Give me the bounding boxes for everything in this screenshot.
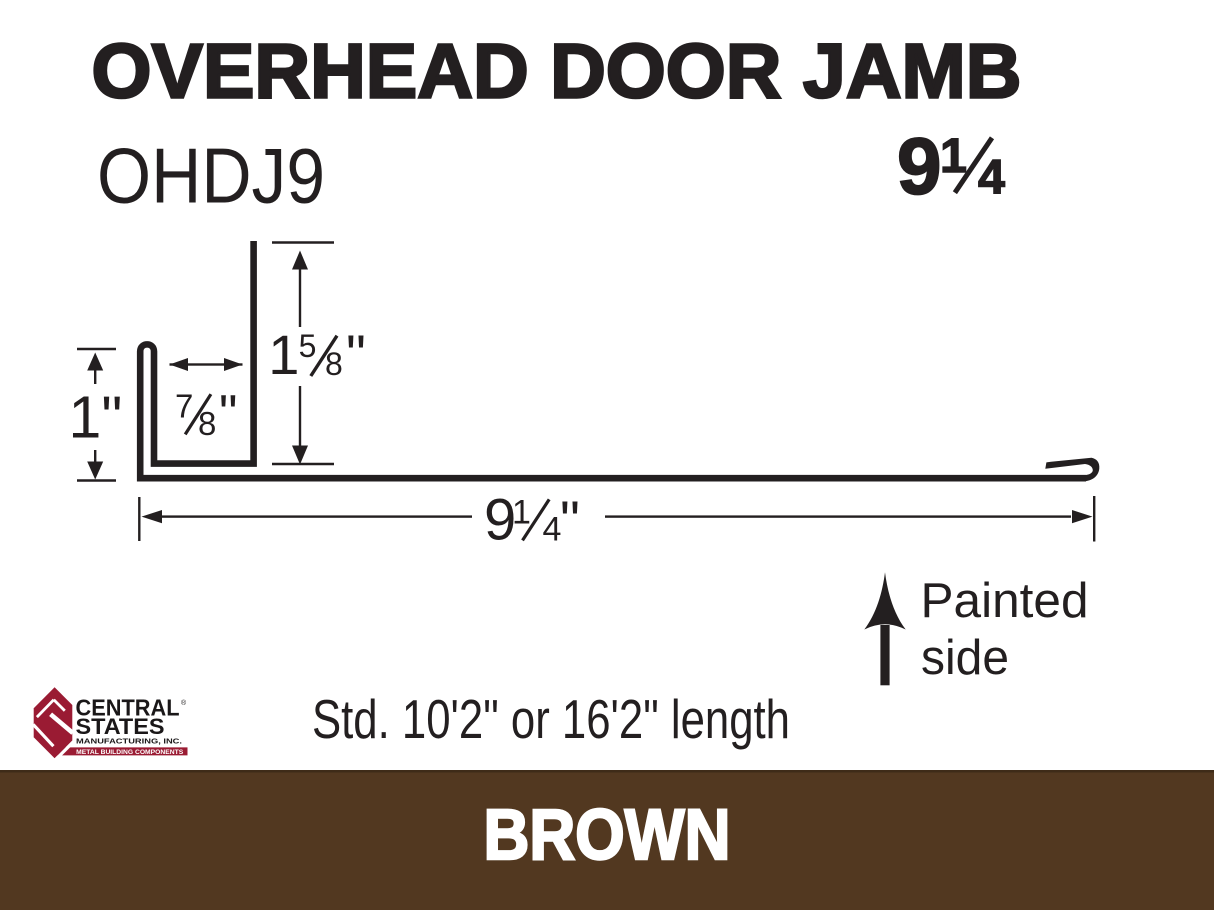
svg-text:4: 4 <box>543 510 562 548</box>
svg-text:5: 5 <box>299 328 317 364</box>
svg-text:1: 1 <box>268 323 299 386</box>
svg-text:4: 4 <box>978 150 1005 204</box>
svg-text:®: ® <box>181 699 187 707</box>
svg-text:1: 1 <box>940 129 967 183</box>
svg-text:MANUFACTURING, INC.: MANUFACTURING, INC. <box>76 737 182 746</box>
svg-text:Painted: Painted <box>921 573 1089 628</box>
svg-text:1": 1" <box>69 385 123 451</box>
svg-text:": " <box>219 385 237 443</box>
svg-text:side: side <box>921 630 1009 685</box>
svg-text:OVERHEAD DOOR JAMB: OVERHEAD DOOR JAMB <box>92 29 1022 115</box>
svg-text:1: 1 <box>512 494 531 532</box>
svg-text:METAL BUILDING COMPONENTS: METAL BUILDING COMPONENTS <box>76 749 184 756</box>
svg-text:OHDJ9: OHDJ9 <box>97 132 325 220</box>
svg-text:7: 7 <box>175 388 193 425</box>
svg-text:8: 8 <box>198 405 216 442</box>
svg-text:9: 9 <box>897 121 942 210</box>
svg-text:": " <box>560 489 580 552</box>
svg-text:STATES: STATES <box>76 714 165 739</box>
svg-text:8: 8 <box>325 346 343 382</box>
svg-text:": " <box>346 323 366 386</box>
svg-text:Std. 10'2" or 16'2" length: Std. 10'2" or 16'2" length <box>312 688 790 750</box>
svg-text:BROWN: BROWN <box>484 796 731 875</box>
